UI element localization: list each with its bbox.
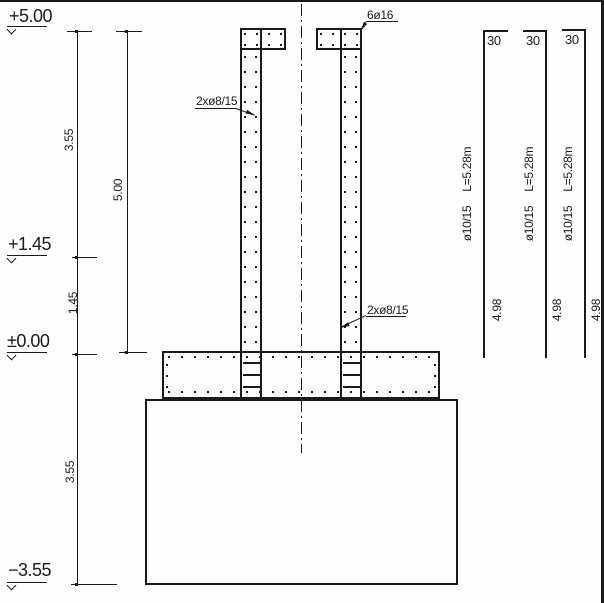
frame-top-border — [0, 0, 604, 2]
bar-straight-length: 4.98 — [550, 299, 564, 321]
left-cap-divider — [260, 28, 262, 50]
bar-spec: ø10/15 — [460, 206, 474, 242]
rebar-dots-row — [244, 44, 282, 46]
dim-tick-dot — [75, 353, 78, 356]
rebar-dots-column — [434, 364, 436, 390]
bar-hook — [562, 29, 586, 31]
bar-hook-length: 30 — [487, 33, 501, 48]
bar-hook — [523, 30, 547, 32]
bar-spec-label: ø10/15L=5.28m — [561, 147, 575, 242]
bar-spec-label: ø10/15L=5.28m — [522, 147, 536, 242]
left-wall-outer-edge — [240, 50, 242, 399]
rebar-dots-column — [166, 364, 168, 390]
leader-arrow-icon — [359, 21, 367, 31]
left-wall-inner-edge — [260, 50, 262, 399]
elevation-label-bottom: −3.55 — [8, 560, 51, 581]
bar-vertical — [584, 29, 586, 358]
leader-arrow-icon — [246, 109, 256, 116]
dim-a-tick — [67, 31, 92, 32]
right-wall-lap-lines — [343, 362, 360, 390]
bar-hook-length: 30 — [526, 33, 540, 48]
rebar-dots-column — [344, 56, 346, 356]
dim-b-line — [127, 31, 128, 353]
bar-vertical — [483, 30, 485, 358]
bar-spec-label: ø10/15L=5.28m — [460, 147, 474, 242]
right-wall-cap — [316, 28, 362, 50]
elevation-label-top: +5.00 — [9, 6, 52, 27]
top-bars-label: 6ø16 — [367, 8, 393, 22]
dim-tick-dot — [75, 256, 78, 259]
wall-bars-lower-underline — [366, 316, 406, 317]
structural-section-drawing: +5.00 +1.45 ±0.00 −3.55 3.55 1.45 3.55 — [0, 0, 604, 603]
bar-straight-length: 4.98 — [490, 299, 504, 321]
dim-value-lower: 3.55 — [63, 461, 77, 483]
bar-spec: ø10/15 — [561, 206, 575, 242]
wall-bars-lower-label: 2xø8/15 — [367, 303, 408, 317]
left-wall-cap — [240, 28, 286, 50]
dim-tick-dot — [125, 351, 128, 354]
top-bars-underline — [366, 21, 398, 22]
dim-b-tick — [116, 31, 142, 32]
elevation-label-zero: ±0.00 — [7, 331, 49, 352]
rebar-dots-row — [320, 33, 358, 35]
rebar-dots-column — [255, 56, 257, 356]
right-cap-divider — [340, 28, 342, 50]
right-wall-outer-edge — [360, 50, 362, 399]
bar-hook — [483, 30, 508, 32]
bar-straight-length: 4.98 — [589, 299, 603, 321]
rebar-dots-column — [244, 56, 246, 356]
left-wall-lap-lines — [243, 362, 260, 390]
bar-total-length: L=5.28m — [522, 147, 536, 192]
bar-hook-length: 30 — [565, 32, 579, 47]
bar-spec: ø10/15 — [522, 206, 536, 242]
bar-vertical — [545, 30, 547, 358]
rebar-dots-row — [168, 391, 434, 393]
right-wall-inner-edge — [340, 50, 342, 399]
dim-value-middle: 1.45 — [66, 292, 80, 314]
bar-total-length: L=5.28m — [460, 147, 474, 192]
bar-total-length: L=5.28m — [561, 147, 575, 192]
dim-tick-dot — [125, 30, 128, 33]
rebar-dots-row — [320, 44, 358, 46]
dim-value-upper: 3.55 — [62, 129, 76, 151]
centerline — [301, 4, 302, 453]
rebar-dots-column — [355, 56, 357, 356]
wall-bars-upper-label: 2xø8/15 — [196, 94, 237, 108]
wall-bars-upper-underline — [195, 108, 236, 109]
rebar-dots-row — [244, 33, 282, 35]
dim-value-wall-height: 5.00 — [111, 179, 125, 201]
dim-b-tick — [119, 352, 147, 353]
elevation-label-mid: +1.45 — [8, 234, 51, 255]
rebar-dots-row — [168, 356, 434, 358]
dim-tick-dot — [75, 583, 78, 586]
dim-tick-dot — [75, 30, 78, 33]
